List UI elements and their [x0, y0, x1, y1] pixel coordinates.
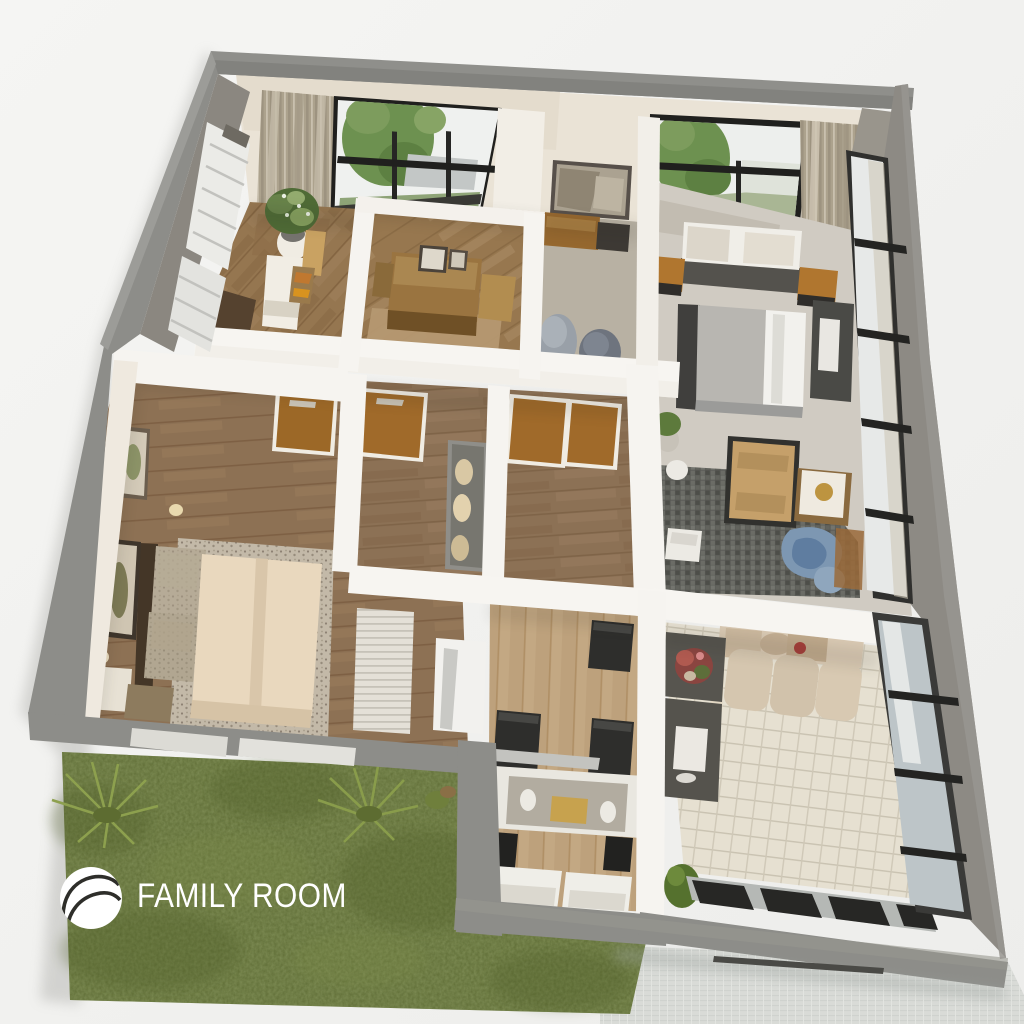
svg-text:FAMILY ROOM: FAMILY ROOM: [137, 876, 347, 914]
